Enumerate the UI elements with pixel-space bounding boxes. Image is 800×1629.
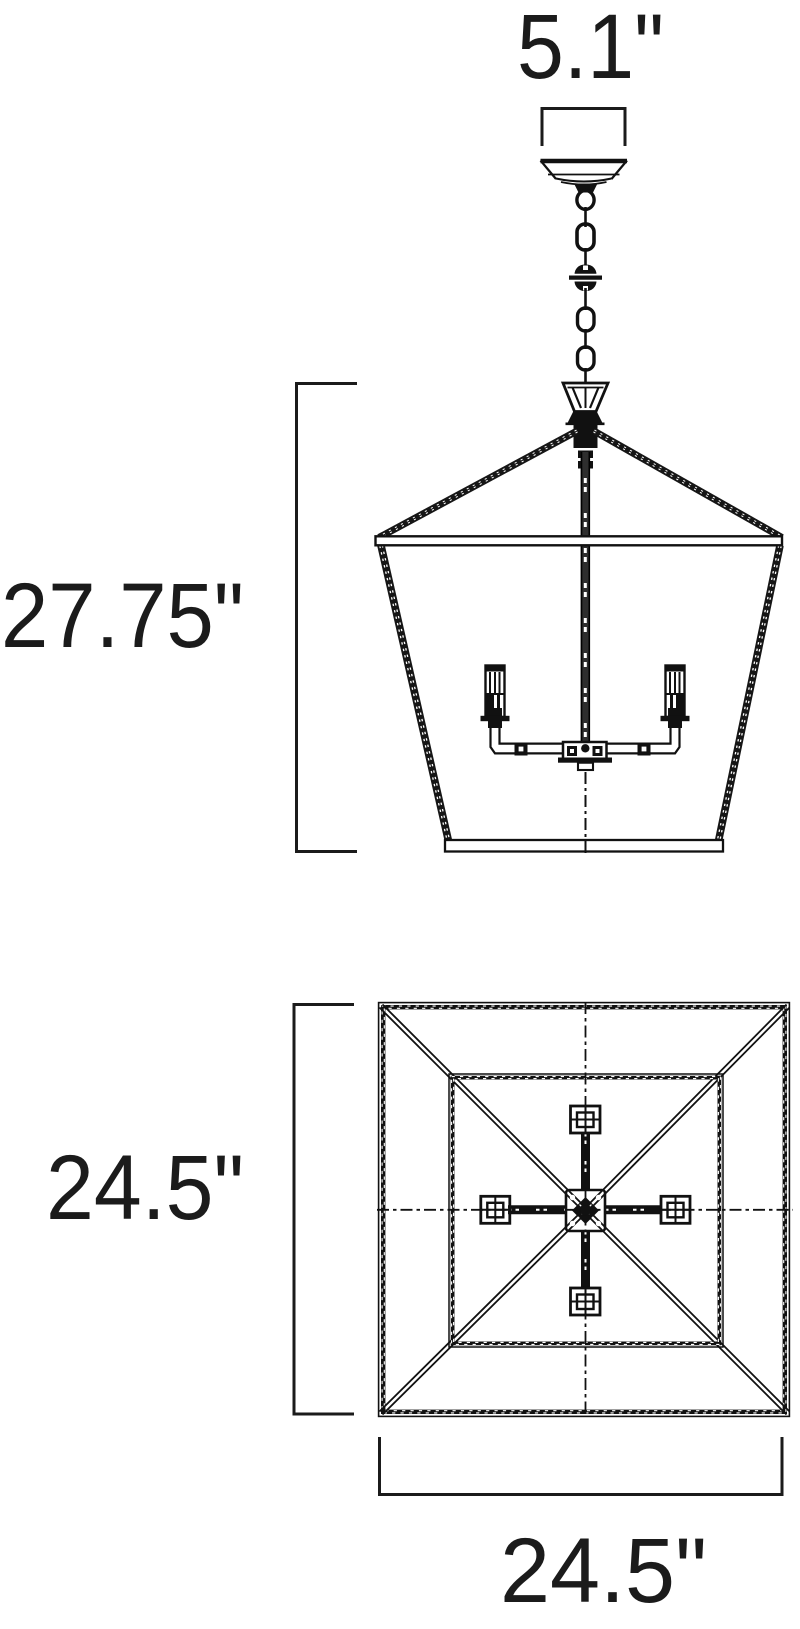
svg-text:24.5": 24.5": [500, 1520, 707, 1622]
svg-text:5.1": 5.1": [517, 0, 664, 98]
svg-text:24.5": 24.5": [46, 1137, 244, 1239]
svg-text:27.75": 27.75": [1, 565, 244, 667]
